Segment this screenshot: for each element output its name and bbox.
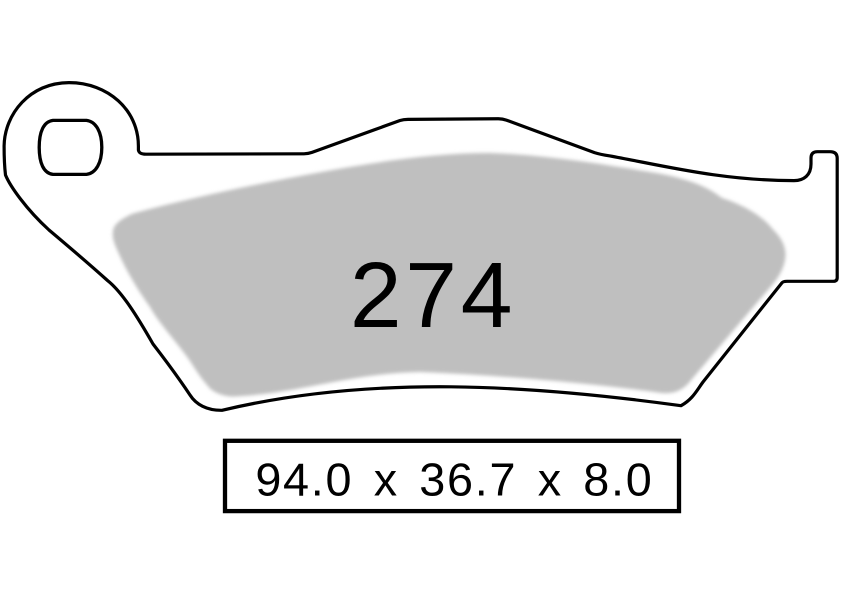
svg-text:94.0 x 36.7 x 8.0: 94.0 x 36.7 x 8.0 bbox=[255, 454, 653, 506]
svg-text:274: 274 bbox=[350, 243, 516, 347]
